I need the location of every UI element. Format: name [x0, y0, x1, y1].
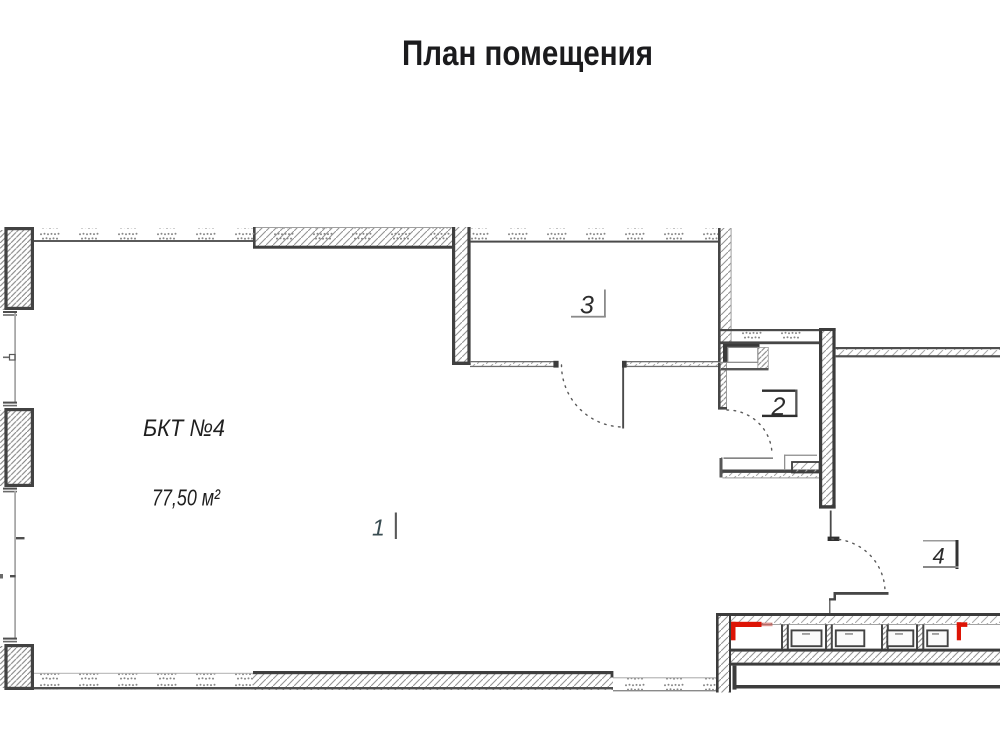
svg-text:БКТ №4: БКТ №4 — [143, 415, 225, 442]
svg-text:77,50 м²: 77,50 м² — [152, 485, 221, 511]
svg-text:4: 4 — [933, 544, 945, 569]
svg-text:2: 2 — [771, 393, 786, 421]
svg-text:3: 3 — [580, 292, 594, 320]
svg-text:1: 1 — [372, 515, 385, 541]
svg-text:План помещения: План помещения — [402, 33, 653, 73]
